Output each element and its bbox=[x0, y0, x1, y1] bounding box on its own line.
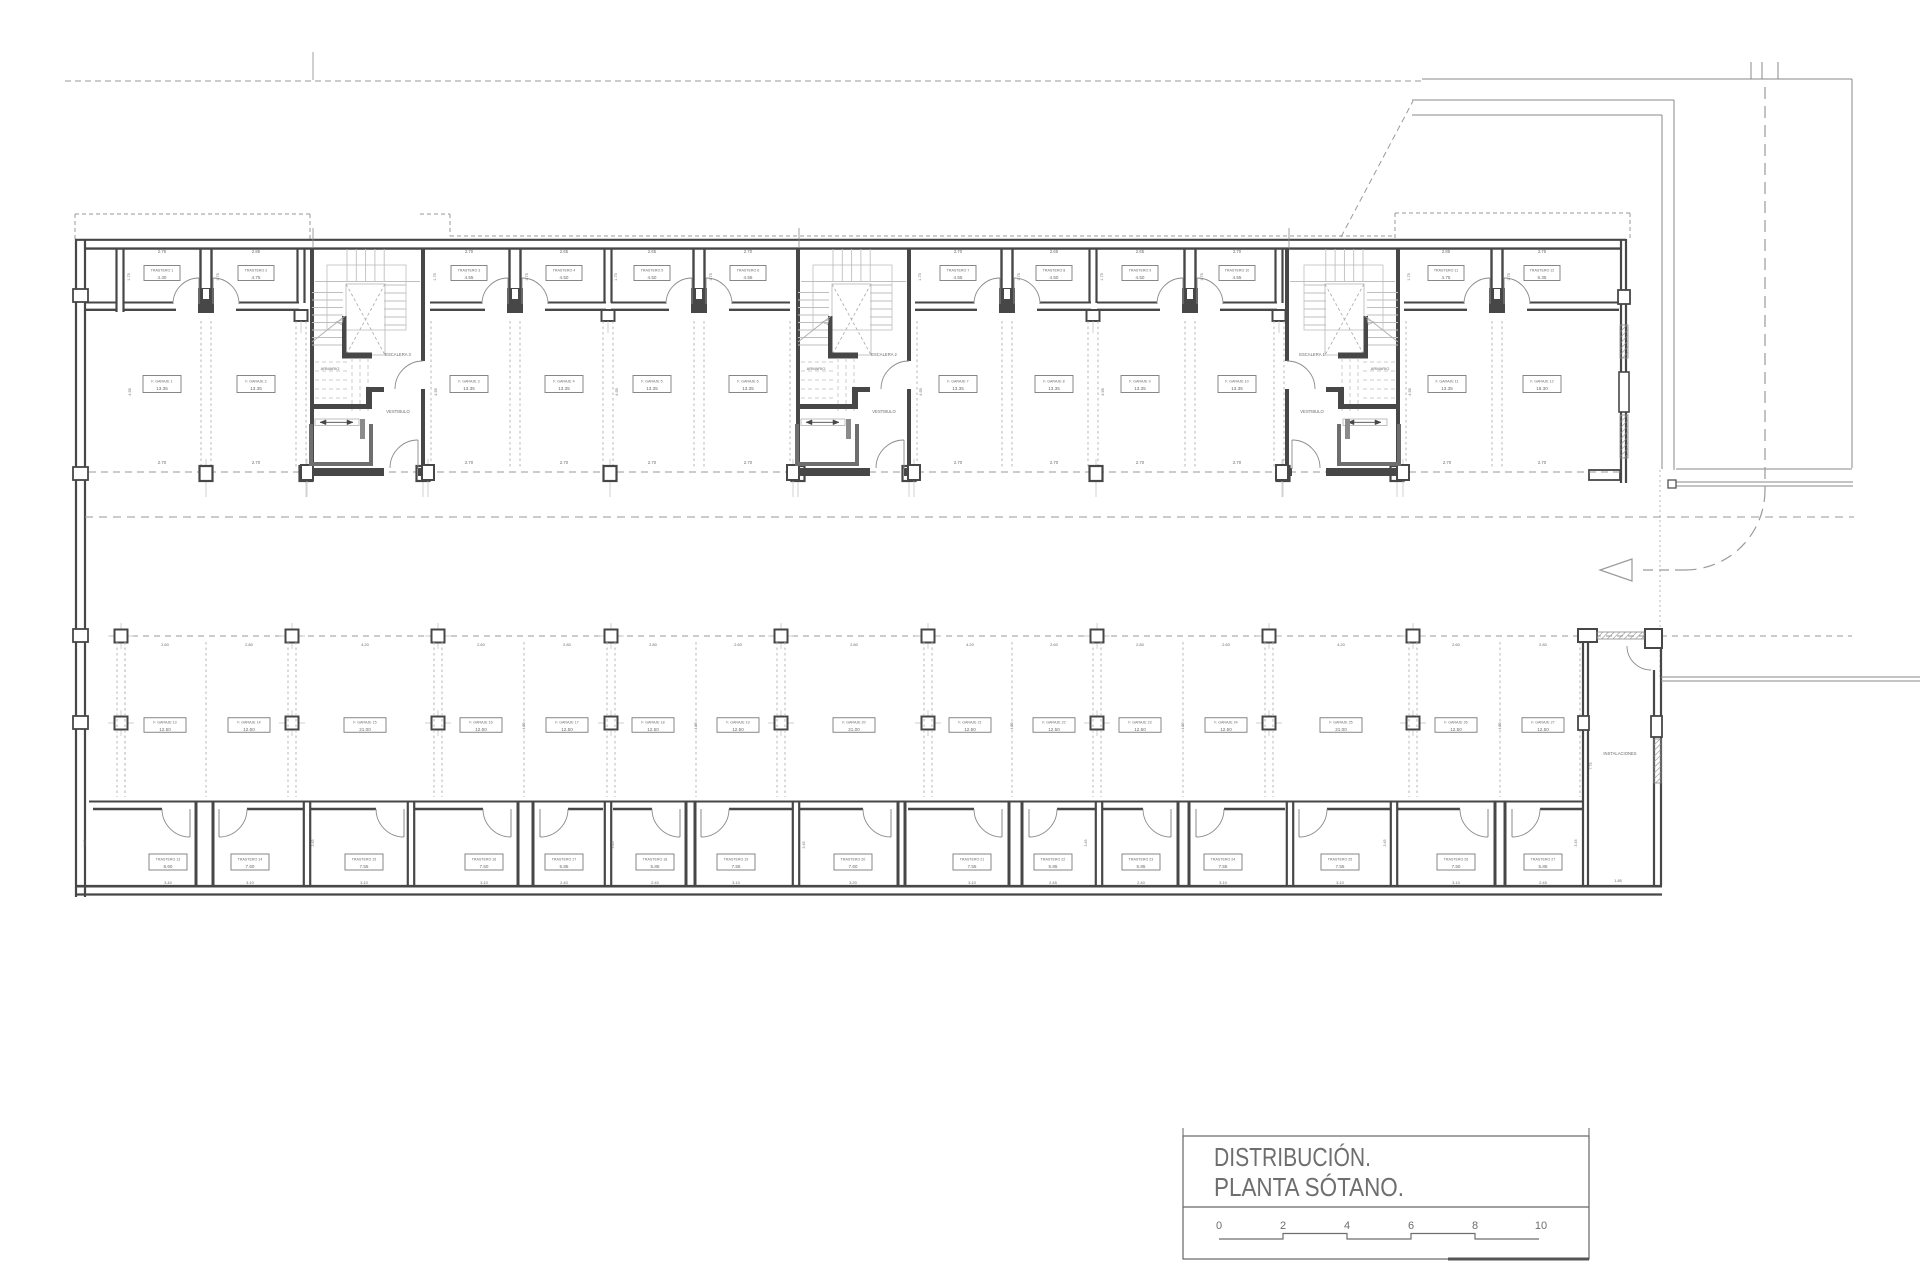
svg-text:F. GARAJE 1: F. GARAJE 1 bbox=[151, 380, 172, 384]
svg-text:TRASTERO 22: TRASTERO 22 bbox=[1041, 858, 1066, 862]
svg-text:4.50: 4.50 bbox=[560, 275, 569, 280]
svg-text:2.80: 2.80 bbox=[245, 642, 254, 647]
svg-text:2.40: 2.40 bbox=[560, 880, 569, 885]
svg-text:F. GARAJE 27: F. GARAJE 27 bbox=[1531, 721, 1554, 725]
svg-text:12.50: 12.50 bbox=[1134, 727, 1146, 732]
svg-text:TRASTERO 8: TRASTERO 8 bbox=[1043, 269, 1066, 273]
svg-text:TRASTERO 24: TRASTERO 24 bbox=[1211, 858, 1236, 862]
svg-text:VESTIBULO: VESTIBULO bbox=[1300, 409, 1324, 414]
svg-text:12.50: 12.50 bbox=[1220, 727, 1232, 732]
svg-text:3.10: 3.10 bbox=[360, 880, 369, 885]
svg-text:3.10: 3.10 bbox=[732, 880, 741, 885]
svg-text:7.55: 7.55 bbox=[360, 864, 369, 869]
svg-text:2.70: 2.70 bbox=[744, 460, 753, 465]
svg-text:4.95: 4.95 bbox=[522, 723, 526, 730]
svg-text:F. GARAJE 13: F. GARAJE 13 bbox=[153, 721, 176, 725]
svg-text:TRASTERO 25: TRASTERO 25 bbox=[1328, 858, 1353, 862]
svg-text:4.95: 4.95 bbox=[1101, 388, 1105, 395]
svg-text:TRASTERO 15: TRASTERO 15 bbox=[352, 858, 377, 862]
svg-text:TRASTERO 18: TRASTERO 18 bbox=[643, 858, 668, 862]
svg-text:3.20: 3.20 bbox=[849, 880, 858, 885]
svg-text:F. GARAJE 6: F. GARAJE 6 bbox=[737, 380, 758, 384]
svg-text:ESCALERA 3: ESCALERA 3 bbox=[385, 352, 411, 357]
svg-text:F. GARAJE 16: F. GARAJE 16 bbox=[469, 721, 492, 725]
svg-text:13.35: 13.35 bbox=[156, 386, 168, 391]
svg-text:13.35: 13.35 bbox=[250, 386, 262, 391]
svg-text:2.70: 2.70 bbox=[1233, 249, 1242, 254]
svg-text:1.75: 1.75 bbox=[127, 273, 131, 280]
svg-text:TRASTERO 11: TRASTERO 11 bbox=[1434, 269, 1458, 273]
svg-text:2.60: 2.60 bbox=[734, 642, 743, 647]
svg-text:F. GARAJE 25: F. GARAJE 25 bbox=[1329, 721, 1352, 725]
svg-text:F. GARAJE 20: F. GARAJE 20 bbox=[842, 721, 865, 725]
svg-text:TRASTERO 1: TRASTERO 1 bbox=[151, 269, 174, 273]
svg-text:5.85: 5.85 bbox=[1049, 864, 1058, 869]
svg-text:5.85: 5.85 bbox=[1137, 864, 1146, 869]
svg-text:2.60: 2.60 bbox=[1222, 642, 1231, 647]
svg-text:4.95: 4.95 bbox=[919, 388, 923, 395]
svg-text:3.40: 3.40 bbox=[164, 880, 173, 885]
svg-text:ARMARIO: ARMARIO bbox=[1371, 366, 1390, 371]
svg-text:13.35: 13.35 bbox=[1441, 386, 1453, 391]
svg-text:2.70: 2.70 bbox=[1233, 460, 1242, 465]
svg-text:12.50: 12.50 bbox=[1537, 727, 1549, 732]
svg-text:F. GARAJE 4: F. GARAJE 4 bbox=[553, 380, 574, 384]
svg-text:2.70: 2.70 bbox=[1050, 460, 1059, 465]
svg-text:4.75: 4.75 bbox=[1442, 275, 1451, 280]
svg-text:7.55: 7.55 bbox=[732, 864, 741, 869]
svg-text:2.60: 2.60 bbox=[1050, 642, 1059, 647]
svg-text:3.45: 3.45 bbox=[802, 842, 806, 849]
svg-text:4.55: 4.55 bbox=[465, 275, 474, 280]
svg-text:2.40: 2.40 bbox=[1137, 880, 1146, 885]
svg-text:TRASTERO 26: TRASTERO 26 bbox=[1444, 858, 1469, 862]
svg-text:TRASTERO 7: TRASTERO 7 bbox=[947, 269, 970, 273]
svg-text:4.50: 4.50 bbox=[1050, 275, 1059, 280]
svg-text:TRASTERO 27: TRASTERO 27 bbox=[1531, 858, 1556, 862]
svg-text:13.35: 13.35 bbox=[646, 386, 658, 391]
svg-text:13.35: 13.35 bbox=[1134, 386, 1146, 391]
svg-text:TRASTERO 14: TRASTERO 14 bbox=[238, 858, 263, 862]
svg-text:13.35: 13.35 bbox=[742, 386, 754, 391]
svg-text:TRASTERO 2: TRASTERO 2 bbox=[245, 269, 268, 273]
svg-text:3.45: 3.45 bbox=[1383, 840, 1387, 847]
svg-text:7.50: 7.50 bbox=[1452, 864, 1461, 869]
svg-text:3.45: 3.45 bbox=[83, 840, 87, 847]
svg-text:2.65: 2.65 bbox=[560, 249, 569, 254]
svg-text:TRASTERO 12: TRASTERO 12 bbox=[1530, 269, 1555, 273]
svg-text:3.10: 3.10 bbox=[1336, 880, 1345, 885]
svg-text:F. GARAJE 14: F. GARAJE 14 bbox=[237, 721, 260, 725]
svg-text:TRASTERO 17: TRASTERO 17 bbox=[552, 858, 577, 862]
svg-text:TRASTERO 3: TRASTERO 3 bbox=[458, 269, 481, 273]
svg-text:PLANTA SÓTANO.: PLANTA SÓTANO. bbox=[1214, 1172, 1404, 1202]
svg-text:4: 4 bbox=[1344, 1220, 1350, 1232]
svg-text:4.55: 4.55 bbox=[1233, 275, 1242, 280]
svg-text:F. GARAJE 7: F. GARAJE 7 bbox=[947, 380, 968, 384]
svg-text:1.75: 1.75 bbox=[709, 273, 713, 280]
svg-text:3.10: 3.10 bbox=[968, 880, 977, 885]
svg-text:1.85: 1.85 bbox=[1614, 879, 1621, 883]
svg-text:VESTIBULO: VESTIBULO bbox=[872, 409, 896, 414]
svg-text:F. GARAJE 17: F. GARAJE 17 bbox=[555, 721, 578, 725]
svg-text:8.60: 8.60 bbox=[164, 864, 173, 869]
svg-text:TRASTERO 4: TRASTERO 4 bbox=[553, 269, 576, 273]
svg-text:4.55: 4.55 bbox=[954, 275, 963, 280]
svg-text:12.50: 12.50 bbox=[159, 727, 171, 732]
svg-text:F. GARAJE 12: F. GARAJE 12 bbox=[1530, 380, 1553, 384]
svg-text:4.20: 4.20 bbox=[966, 642, 975, 647]
svg-text:13.35: 13.35 bbox=[952, 386, 964, 391]
svg-text:3.10: 3.10 bbox=[246, 880, 255, 885]
svg-text:3.45: 3.45 bbox=[611, 842, 615, 849]
svg-text:21.00: 21.00 bbox=[1335, 727, 1347, 732]
svg-text:2.75: 2.75 bbox=[1538, 249, 1547, 254]
svg-text:TRASTERO 5: TRASTERO 5 bbox=[641, 269, 664, 273]
svg-text:1.75: 1.75 bbox=[1100, 273, 1104, 280]
svg-text:7.60: 7.60 bbox=[849, 864, 858, 869]
svg-text:4.95: 4.95 bbox=[128, 388, 132, 395]
svg-text:1.75: 1.75 bbox=[1200, 273, 1204, 280]
svg-text:2.85: 2.85 bbox=[1442, 249, 1451, 254]
svg-text:2.80: 2.80 bbox=[1539, 642, 1548, 647]
svg-text:1.75: 1.75 bbox=[1017, 273, 1021, 280]
svg-text:4.50: 4.50 bbox=[648, 275, 657, 280]
svg-text:3.10: 3.10 bbox=[1219, 880, 1228, 885]
svg-text:7.55: 7.55 bbox=[968, 864, 977, 869]
svg-text:4.20: 4.20 bbox=[361, 642, 370, 647]
svg-text:F. GARAJE 15: F. GARAJE 15 bbox=[353, 721, 376, 725]
svg-text:2.70: 2.70 bbox=[954, 249, 963, 254]
svg-text:2.70: 2.70 bbox=[158, 460, 167, 465]
svg-text:4.95: 4.95 bbox=[1498, 723, 1502, 730]
svg-text:F. GARAJE 19: F. GARAJE 19 bbox=[726, 721, 749, 725]
svg-text:12.50: 12.50 bbox=[964, 727, 976, 732]
svg-text:2.65: 2.65 bbox=[1136, 249, 1145, 254]
svg-text:VESTIBULO: VESTIBULO bbox=[386, 409, 410, 414]
svg-text:4.95: 4.95 bbox=[1181, 723, 1185, 730]
svg-text:TRASTERO 6: TRASTERO 6 bbox=[737, 269, 760, 273]
svg-text:F. GARAJE 2: F. GARAJE 2 bbox=[245, 380, 266, 384]
svg-text:4.55: 4.55 bbox=[744, 275, 753, 280]
svg-text:2.70: 2.70 bbox=[1443, 460, 1452, 465]
svg-text:4.95: 4.95 bbox=[434, 388, 438, 395]
svg-text:8: 8 bbox=[1472, 1220, 1478, 1232]
svg-text:1.75: 1.75 bbox=[1407, 273, 1411, 280]
svg-text:3.10: 3.10 bbox=[1452, 880, 1461, 885]
svg-text:2.70: 2.70 bbox=[560, 460, 569, 465]
svg-text:4.95: 4.95 bbox=[1408, 388, 1412, 395]
svg-text:4.20: 4.20 bbox=[1337, 642, 1346, 647]
svg-text:6.35: 6.35 bbox=[1538, 275, 1547, 280]
svg-text:F. GARAJE 22: F. GARAJE 22 bbox=[1042, 721, 1065, 725]
svg-text:F. GARAJE 5: F. GARAJE 5 bbox=[641, 380, 662, 384]
svg-text:F. GARAJE 21: F. GARAJE 21 bbox=[958, 721, 981, 725]
svg-text:F. GARAJE 24: F. GARAJE 24 bbox=[1214, 721, 1237, 725]
svg-text:4.75: 4.75 bbox=[252, 275, 261, 280]
svg-text:2.45: 2.45 bbox=[1049, 880, 1058, 885]
svg-text:4.95: 4.95 bbox=[694, 723, 698, 730]
svg-text:2.65: 2.65 bbox=[1050, 249, 1059, 254]
svg-text:2.60: 2.60 bbox=[161, 642, 170, 647]
svg-text:2.70: 2.70 bbox=[465, 460, 474, 465]
svg-text:5.85: 5.85 bbox=[560, 864, 569, 869]
svg-text:INSTALACIONES: INSTALACIONES bbox=[1603, 751, 1636, 756]
svg-text:7.75: 7.75 bbox=[1589, 763, 1593, 770]
svg-text:12.50: 12.50 bbox=[1450, 727, 1462, 732]
svg-text:10: 10 bbox=[1535, 1220, 1547, 1232]
svg-text:F. GARAJE 10: F. GARAJE 10 bbox=[1225, 380, 1248, 384]
svg-text:ESCALERA 1: ESCALERA 1 bbox=[1299, 352, 1325, 357]
svg-text:1.75: 1.75 bbox=[216, 273, 220, 280]
svg-text:2.70: 2.70 bbox=[1538, 460, 1547, 465]
svg-text:F. GARAJE 3: F. GARAJE 3 bbox=[458, 380, 479, 384]
svg-text:2.70: 2.70 bbox=[648, 460, 657, 465]
svg-text:TRASTERO 19: TRASTERO 19 bbox=[724, 858, 749, 862]
svg-text:2: 2 bbox=[1280, 1220, 1286, 1232]
svg-text:7.50: 7.50 bbox=[246, 864, 255, 869]
svg-text:21.00: 21.00 bbox=[359, 727, 371, 732]
svg-text:4.50: 4.50 bbox=[1136, 275, 1145, 280]
svg-text:2.70: 2.70 bbox=[954, 460, 963, 465]
svg-text:0: 0 bbox=[1216, 1220, 1222, 1232]
svg-text:21.00: 21.00 bbox=[848, 727, 860, 732]
svg-text:F. GARAJE 18: F. GARAJE 18 bbox=[641, 721, 664, 725]
svg-text:TRASTERO 20: TRASTERO 20 bbox=[841, 858, 866, 862]
svg-text:2.60: 2.60 bbox=[1452, 642, 1461, 647]
svg-text:5.85: 5.85 bbox=[651, 864, 660, 869]
svg-text:2.80: 2.80 bbox=[850, 642, 859, 647]
svg-text:12.50: 12.50 bbox=[732, 727, 744, 732]
svg-text:2.80: 2.80 bbox=[1136, 642, 1145, 647]
svg-text:7.55: 7.55 bbox=[1336, 864, 1345, 869]
svg-text:ARMARIO: ARMARIO bbox=[321, 366, 340, 371]
svg-text:1.75: 1.75 bbox=[614, 273, 618, 280]
svg-text:2.70: 2.70 bbox=[252, 460, 261, 465]
svg-text:18.30: 18.30 bbox=[1536, 386, 1548, 391]
svg-text:3.45: 3.45 bbox=[311, 840, 315, 847]
svg-text:13.35: 13.35 bbox=[1048, 386, 1060, 391]
svg-text:4.95: 4.95 bbox=[1010, 723, 1014, 730]
svg-text:TRASTERO 16: TRASTERO 16 bbox=[472, 858, 497, 862]
svg-text:TRASTERO 23: TRASTERO 23 bbox=[1129, 858, 1154, 862]
svg-text:2.80: 2.80 bbox=[649, 642, 658, 647]
svg-text:1.75: 1.75 bbox=[1507, 273, 1511, 280]
svg-text:2.70: 2.70 bbox=[1136, 460, 1145, 465]
svg-text:ARMARIO: ARMARIO bbox=[807, 366, 826, 371]
svg-text:2.70: 2.70 bbox=[744, 249, 753, 254]
svg-text:TRASTERO 13: TRASTERO 13 bbox=[156, 858, 181, 862]
svg-text:12.50: 12.50 bbox=[475, 727, 487, 732]
svg-text:TRASTERO 10: TRASTERO 10 bbox=[1225, 269, 1250, 273]
svg-text:13.35: 13.35 bbox=[1231, 386, 1243, 391]
svg-text:3.45: 3.45 bbox=[1574, 840, 1578, 847]
svg-text:1.75: 1.75 bbox=[525, 273, 529, 280]
svg-text:F. GARAJE 26: F. GARAJE 26 bbox=[1444, 721, 1467, 725]
svg-text:ESCALERA 2: ESCALERA 2 bbox=[871, 352, 897, 357]
svg-text:2.45: 2.45 bbox=[1539, 880, 1548, 885]
svg-text:2.40: 2.40 bbox=[651, 880, 660, 885]
svg-text:2.80: 2.80 bbox=[563, 642, 572, 647]
svg-text:3.45: 3.45 bbox=[1084, 840, 1088, 847]
svg-text:12.50: 12.50 bbox=[647, 727, 659, 732]
svg-text:2.76: 2.76 bbox=[158, 249, 167, 254]
svg-text:12.50: 12.50 bbox=[1048, 727, 1060, 732]
svg-text:13.35: 13.35 bbox=[463, 386, 475, 391]
svg-text:4.30: 4.30 bbox=[158, 275, 167, 280]
svg-text:7.55: 7.55 bbox=[1219, 864, 1228, 869]
svg-text:1.75: 1.75 bbox=[433, 273, 437, 280]
svg-text:1.75: 1.75 bbox=[918, 273, 922, 280]
svg-text:7.50: 7.50 bbox=[480, 864, 489, 869]
svg-text:12.50: 12.50 bbox=[243, 727, 255, 732]
svg-text:13.35: 13.35 bbox=[558, 386, 570, 391]
svg-text:F. GARAJE 11: F. GARAJE 11 bbox=[1436, 380, 1459, 384]
svg-text:2.70: 2.70 bbox=[465, 249, 474, 254]
svg-text:F. GARAJE 9: F. GARAJE 9 bbox=[1129, 380, 1150, 384]
svg-text:2.85: 2.85 bbox=[252, 249, 261, 254]
svg-text:5.85: 5.85 bbox=[1539, 864, 1548, 869]
svg-text:6: 6 bbox=[1408, 1220, 1414, 1232]
svg-text:F. GARAJE 23: F. GARAJE 23 bbox=[1128, 721, 1151, 725]
svg-text:4.95: 4.95 bbox=[615, 388, 619, 395]
svg-text:3.10: 3.10 bbox=[480, 880, 489, 885]
svg-text:TRASTERO 9: TRASTERO 9 bbox=[1129, 269, 1152, 273]
svg-text:2.65: 2.65 bbox=[648, 249, 657, 254]
svg-text:DISTRIBUCIÓN.: DISTRIBUCIÓN. bbox=[1214, 1142, 1371, 1172]
svg-text:12.50: 12.50 bbox=[561, 727, 573, 732]
svg-text:F. GARAJE 8: F. GARAJE 8 bbox=[1043, 380, 1064, 384]
svg-text:2.60: 2.60 bbox=[477, 642, 486, 647]
svg-text:TRASTERO 21: TRASTERO 21 bbox=[960, 858, 985, 862]
